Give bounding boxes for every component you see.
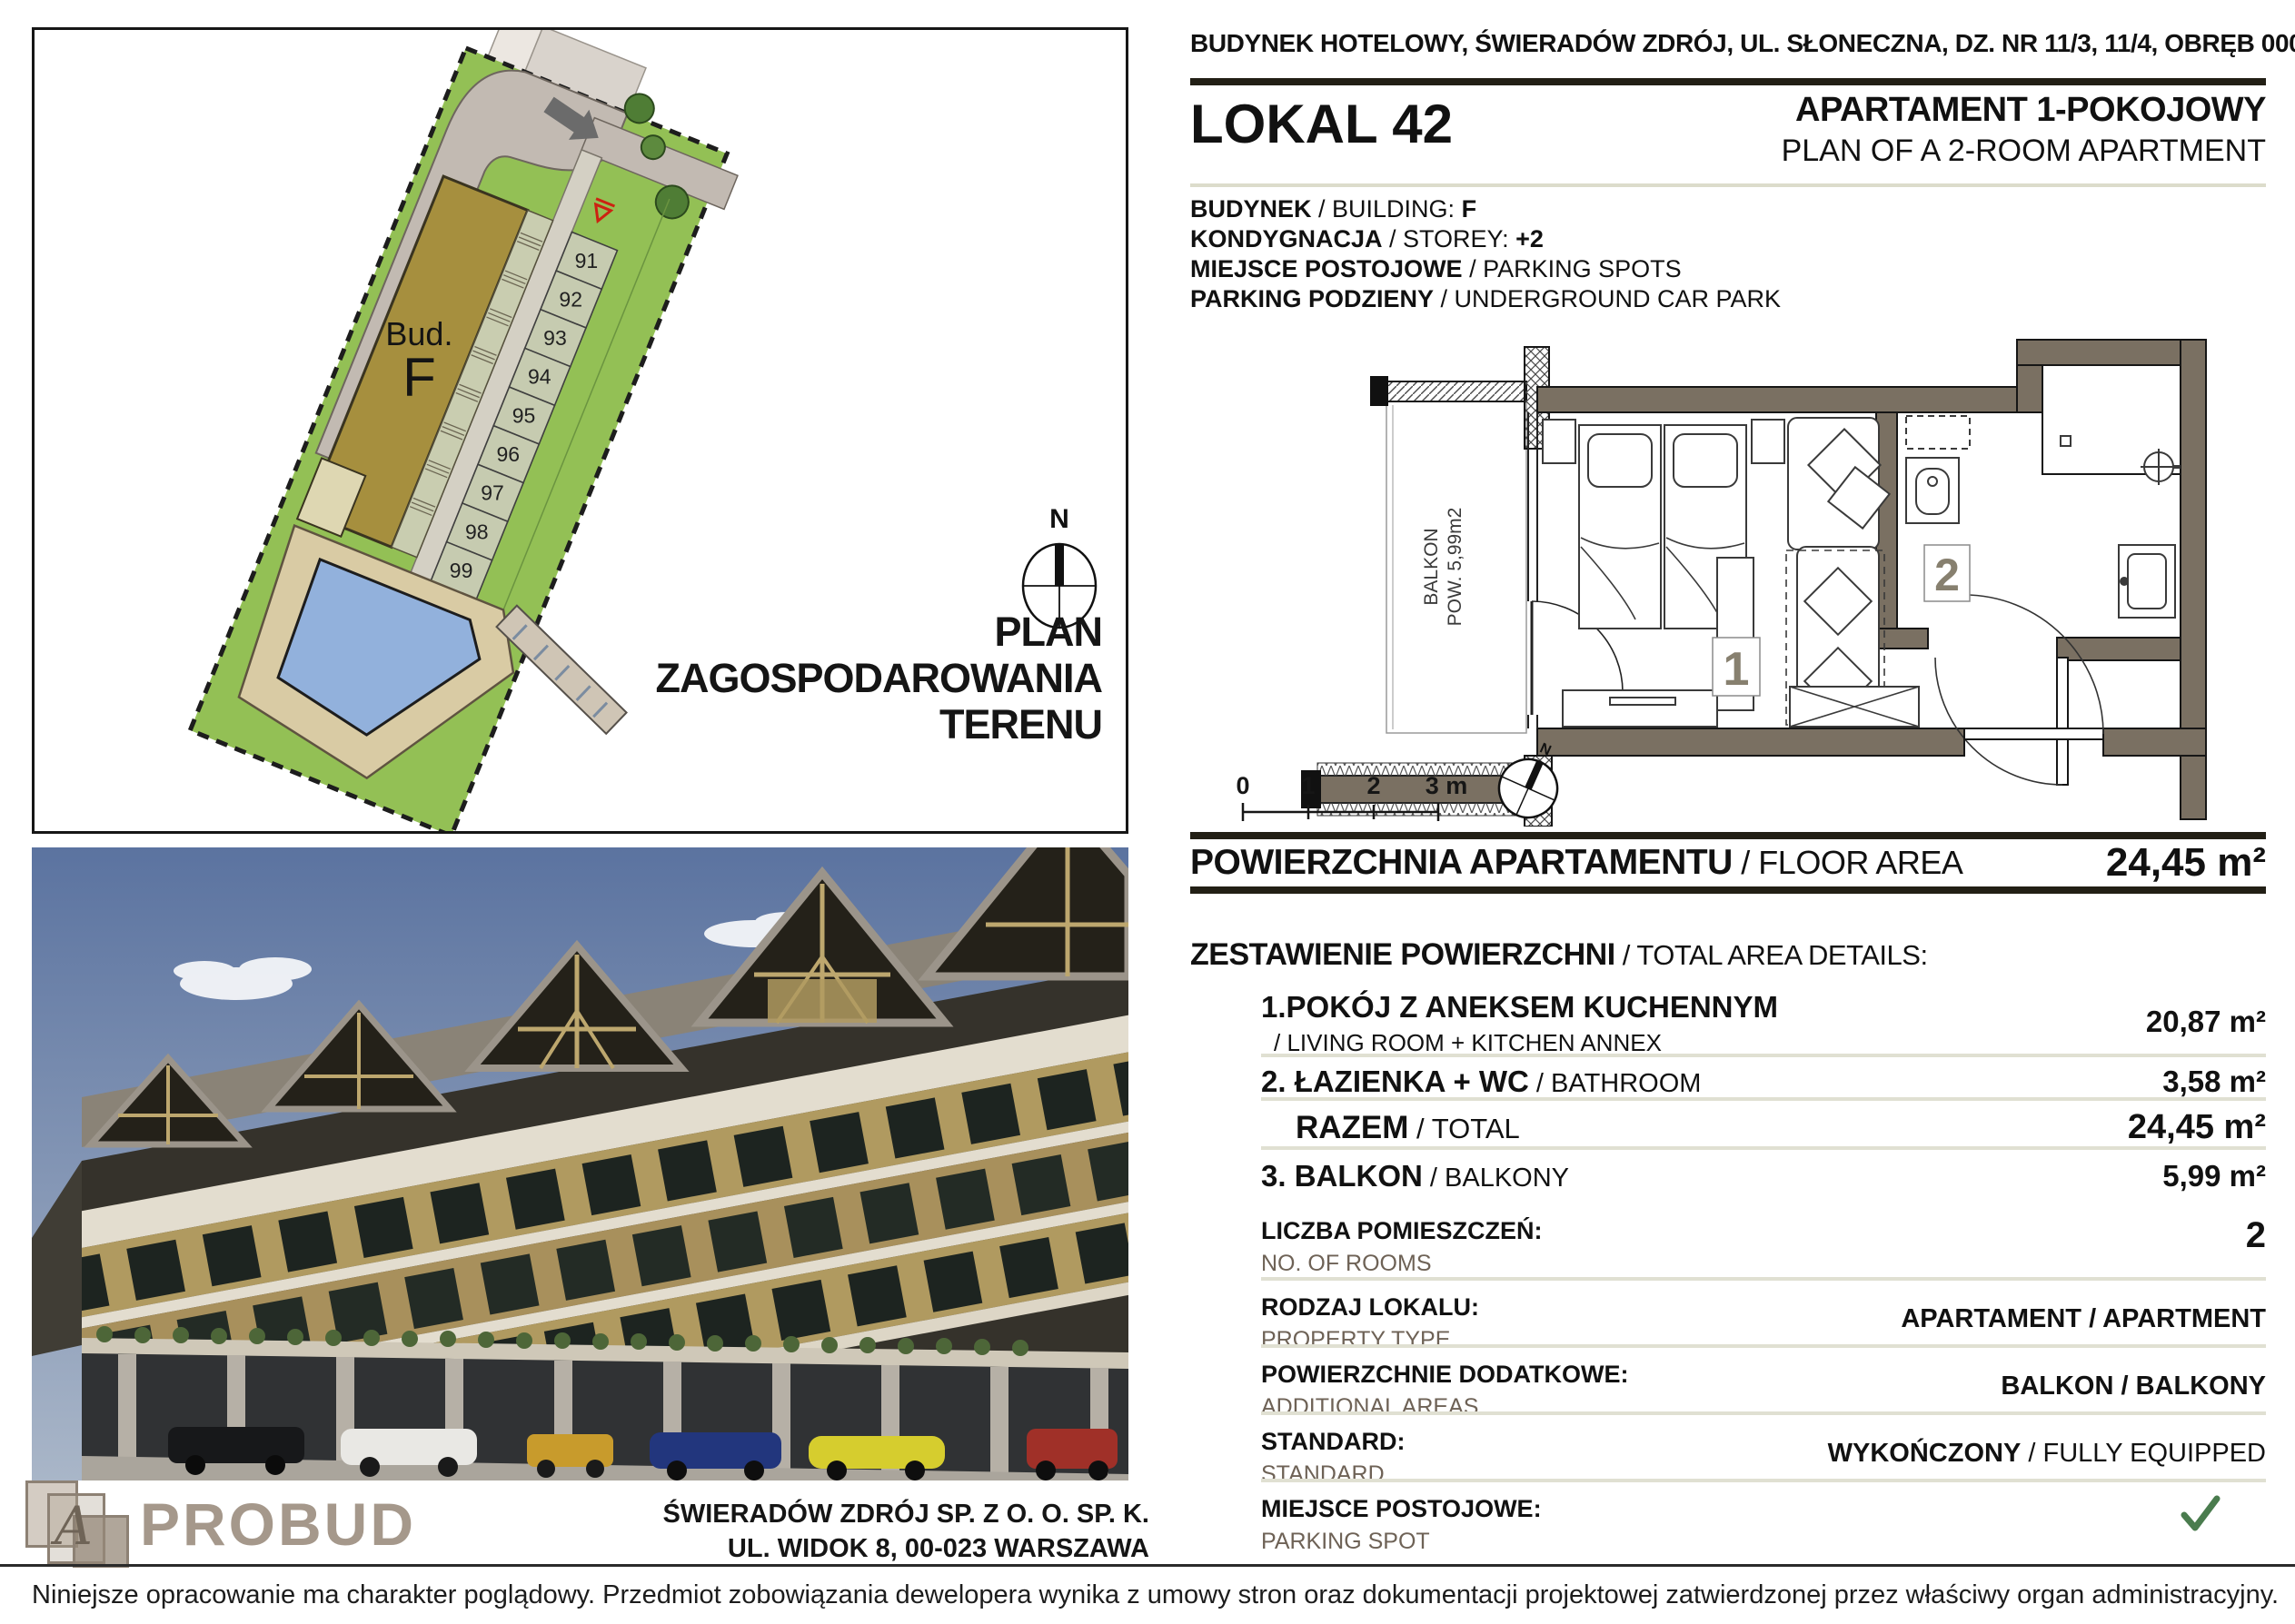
tv-cabinet	[1563, 690, 1717, 727]
building-photo	[32, 847, 1128, 1480]
footer-divider	[0, 1564, 2295, 1567]
info-line: KONDYGNACJA / STOREY: +2	[1190, 224, 2266, 254]
entry-door	[1964, 595, 2103, 739]
svg-text:F: F	[402, 347, 436, 408]
stall-number: 95	[512, 403, 536, 427]
area-row-value: 5,99 m²	[1993, 1159, 2266, 1193]
caption-line: PLAN	[655, 609, 1102, 655]
disclaimer-text: Niniejsze opracowanie ma charakter poglą…	[32, 1580, 2280, 1610]
apartment-type-en: PLAN OF A 2-ROOM APARTMENT	[1539, 134, 2266, 169]
stall-number: 92	[559, 287, 582, 311]
toilet-icon	[1906, 458, 1959, 523]
check-icon	[2177, 1491, 2224, 1535]
pillow	[1588, 434, 1652, 487]
balcony-railing	[1386, 381, 1526, 401]
stall-number: 97	[481, 481, 504, 505]
site-plan-caption: PLAN ZAGOSPODAROWANIA TERENU	[655, 609, 1102, 748]
apartment-plan-sheet: 91 92 93 94 95 96 97 98 99	[0, 0, 2295, 1624]
area-details-heading: ZESTAWIENIE POWIERZCHNI / TOTAL AREA DET…	[1190, 937, 2266, 973]
address-line: ŚWIERADÓW ZDRÓJ SP. Z O. O. SP. K.	[636, 1497, 1149, 1531]
stall-number: 98	[465, 520, 489, 543]
washbasin-icon	[2119, 545, 2175, 618]
row-separator	[1261, 1146, 2266, 1150]
nightstand	[1752, 420, 1784, 463]
row-separator	[1261, 1479, 2266, 1482]
brand-name: PROBUD	[140, 1490, 416, 1559]
room-2-label: 2	[1934, 550, 1960, 600]
bathroom-door	[1935, 658, 2068, 785]
prop-parking: MIEJSCE POSTOJOWE:PARKING SPOT	[1261, 1495, 2266, 1555]
svg-text:0: 0	[1236, 772, 1249, 799]
developer-address: ŚWIERADÓW ZDRÓJ SP. Z O. O. SP. K. UL. W…	[636, 1497, 1149, 1566]
area-row-value: 3,58 m²	[1993, 1065, 2266, 1099]
floor-area-value: 24,45 m²	[2106, 840, 2266, 886]
svg-text:POW. 5,99m2: POW. 5,99m2	[1445, 508, 1465, 627]
wardrobe	[1790, 687, 1919, 727]
rule-thick	[1190, 78, 2266, 85]
vent	[2061, 436, 2071, 446]
room-1-label: 1	[1724, 643, 1750, 696]
site-plan-panel: 91 92 93 94 95 96 97 98 99	[32, 27, 1128, 834]
floor-area-label: POWIERZCHNIA APARTAMENTU / FLOOR AREA	[1190, 843, 1962, 883]
stall-number: 99	[450, 559, 473, 582]
prop-value: 2	[1993, 1215, 2266, 1256]
svg-text:1: 1	[1301, 772, 1315, 799]
caption-line: ZAGOSPODAROWANIA	[655, 655, 1102, 701]
floor-area-bar: POWIERZCHNIA APARTAMENTU / FLOOR AREA 24…	[1190, 832, 2266, 894]
prop-value: BALKON / BALKONY	[1630, 1371, 2266, 1401]
area-row-value: 24,45 m²	[1993, 1108, 2266, 1147]
nightstand	[1543, 420, 1575, 463]
prop-value: WYKOŃCZONY / FULLY EQUIPPED	[1630, 1439, 2266, 1469]
caption-line: TERENU	[655, 701, 1102, 748]
building-info: BUDYNEK / BUILDING: F KONDYGNACJA / STOR…	[1190, 194, 2266, 314]
svg-text:N: N	[1049, 504, 1069, 534]
svg-text:2: 2	[1366, 772, 1380, 799]
info-line: BUDYNEK / BUILDING: F	[1190, 194, 2266, 224]
address-line: UL. WIDOK 8, 00-023 WARSZAWA	[636, 1531, 1149, 1566]
prop-value: APARTAMENT / APARTMENT	[1630, 1304, 2266, 1334]
washer-outline	[1906, 416, 1970, 449]
sofa	[1786, 418, 1890, 725]
project-title: BUDYNEK HOTELOWY, ŚWIERADÓW ZDRÓJ, UL. S…	[1190, 29, 2266, 58]
info-line: MIEJSCE POSTOJOWE / PARKING SPOTS	[1190, 254, 2266, 284]
row-separator	[1261, 1054, 2266, 1057]
row-separator	[1261, 1097, 2266, 1101]
svg-text:BALKON: BALKON	[1421, 528, 1442, 605]
rule-light	[1190, 183, 2266, 187]
tv	[1610, 698, 1675, 705]
balcony: BALKON POW. 5,99m2	[1370, 376, 1526, 733]
apartment-type: APARTAMENT 1-POKOJOWY PLAN OF A 2-ROOM A…	[1539, 91, 2266, 169]
info-line: PARKING PODZIENY / UNDERGROUND CAR PARK	[1190, 284, 2266, 314]
area-row-value: 20,87 m²	[1993, 1005, 2266, 1039]
svg-text:3 m: 3 m	[1426, 772, 1468, 799]
pillow	[1674, 434, 1737, 487]
probud-logo-icon: A	[20, 1479, 156, 1562]
stall-number: 96	[496, 442, 520, 466]
apartment-type-pl: APARTAMENT 1-POKOJOWY	[1539, 91, 2266, 130]
railing-post	[1370, 376, 1388, 406]
stall-number: 94	[528, 365, 551, 389]
row-separator	[1261, 1277, 2266, 1281]
stall-number: 93	[543, 326, 567, 350]
row-separator	[1261, 1411, 2266, 1415]
floor-plan-drawing: BALKON POW. 5,99m2	[1208, 329, 2271, 827]
stall-number: 91	[575, 249, 599, 272]
row-separator	[1261, 1344, 2266, 1348]
